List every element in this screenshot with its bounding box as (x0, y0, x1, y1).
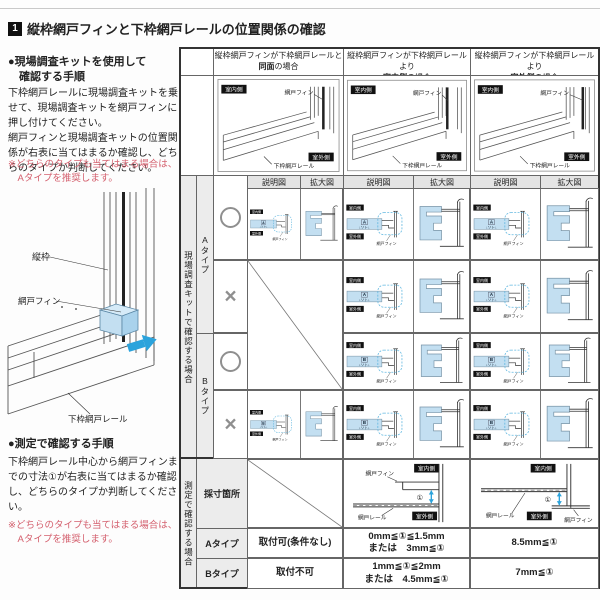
diagonal-line (248, 460, 342, 527)
svg-text:室外側: 室外側 (440, 153, 457, 161)
col-header-indoor: 縦枠網戸フィンが下枠網戸レールより 室内側の場合 (343, 48, 471, 76)
corner-view-flush: 室内側 室外側 網戸フィン 下枠網戸レール (213, 75, 344, 176)
kit-enlarged-icon (543, 393, 596, 456)
kit-cell-Bok-col3: 室内側 B ↓ソト↓ 室外側 網戸フィン (470, 333, 599, 390)
kit-cell-Bng-col2: 室内側 B ↓ソト↓ 室外側 網戸フィン (343, 390, 470, 459)
kit-enlarged-icon (303, 393, 340, 456)
kit-schematic-icon: 室内側 B ↓ソト↓ 室外側 網戸フィン (345, 392, 412, 457)
svg-text:網戸フィン: 網戸フィン (377, 378, 397, 384)
type-b-label: Bタイプ (196, 333, 214, 459)
kit-cell-Bng-col1: 室内側 B ↓ソト↓ 室外側 網戸フィン (247, 390, 343, 459)
svg-text:網戸フィン: 網戸フィン (285, 89, 314, 97)
svg-text:室内側: 室内側 (355, 86, 372, 94)
kit-enlarged-icon (303, 191, 340, 257)
ng-mark-cell: × (213, 390, 248, 459)
kit-schematic-icon: 室内側 A ↓ソト↓ 室外側 網戸フィン (472, 190, 539, 258)
enlarged-area (541, 391, 598, 458)
svg-text:①: ① (545, 496, 551, 504)
top-rule (0, 8, 600, 9)
svg-text:B: B (363, 357, 366, 362)
svg-text:網戸フィン: 網戸フィン (377, 240, 397, 246)
kit-cell-Ang-col3: 室内側 A ↓ソト↓ 室外側 網戸フィン (470, 260, 599, 333)
enlarged-area (541, 334, 598, 389)
svg-text:↓ソト↓: ↓ソト↓ (259, 425, 267, 429)
svg-text:網戸フィン: 網戸フィン (504, 313, 524, 319)
subheader-schematic-3: 説明図 (470, 175, 541, 189)
svg-text:室内側: 室内側 (252, 209, 261, 214)
svg-text:↓ソト↓: ↓ソト↓ (359, 426, 370, 430)
kit-schematic-icon: 室内側 B ↓ソト↓ 室外側 網戸フィン (472, 392, 539, 457)
svg-text:↓ソト↓: ↓ソト↓ (486, 226, 497, 230)
svg-text:網戸フィン: 網戸フィン (413, 89, 442, 97)
measure-spot-outdoor: 室内側 ① 網戸レール 室外側 網戸フィン (470, 459, 599, 528)
corner-view-icon: 室内側 室外側 網戸フィン 下枠網戸レール (474, 79, 595, 172)
corner-view-indoor: 室内側 室外側 網戸フィン 下枠網戸レール (343, 75, 471, 176)
kit-enlarged-icon (543, 191, 596, 257)
title-number-badge: 1 (8, 22, 22, 36)
svg-text:網戸フィン: 網戸フィン (504, 378, 524, 384)
circle-ok-mark (220, 351, 241, 372)
kit-cell-Aok-col3: 室内側 A ↓ソト↓ 室外側 網戸フィン (470, 188, 599, 260)
svg-text:網戸レール: 網戸レール (358, 513, 387, 521)
svg-text:下枠網戸レール: 下枠網戸レール (402, 161, 442, 169)
schematic-area: 室内側 A ↓ソト↓ 室外側 網戸フィン (248, 189, 301, 259)
svg-text:室内側: 室内側 (349, 405, 361, 411)
kit-schematic-icon: 室内側 A ↓ソト↓ 室外側 網戸フィン (345, 262, 412, 331)
manual-page: { "page": { "title_no": "1", "title": "縦… (0, 0, 600, 600)
measure-row-a-label: Aタイプ (196, 528, 248, 559)
enlarged-area (541, 189, 598, 259)
schematic-area: 室内側 A ↓ソト↓ 室外側 網戸フィン (344, 261, 414, 332)
measure-result-b-col3: 7mm≦① (470, 558, 599, 589)
ok-mark-cell (213, 175, 248, 260)
svg-text:網戸フィン: 網戸フィン (366, 469, 395, 477)
measure-spot-outer-icon: 室内側 ① 網戸レール 室外側 網戸フィン (473, 462, 596, 525)
kit-section-side-label: 現場調査キットで確認する場合 (180, 175, 197, 459)
svg-text:室外側: 室外側 (252, 231, 261, 236)
corner-view-icon: 室内側 室外側 網戸フィン 下枠網戸レール (217, 79, 340, 172)
svg-text:網戸フィン: 網戸フィン (273, 236, 288, 241)
measure-method-heading: ●測定で確認する手順 (8, 437, 178, 452)
svg-text:網戸レール: 網戸レール (486, 511, 515, 519)
col-header-flush: 縦枠網戸フィンが下枠網戸レールと 同面の場合 (213, 48, 344, 76)
kit-schematic-icon: 室内側 A ↓ソト↓ 室外側 網戸フィン (249, 190, 299, 258)
enlarged-area (414, 261, 469, 332)
schematic-area: 室内側 B ↓ソト↓ 室外側 網戸フィン (471, 391, 541, 458)
svg-text:室内側: 室内側 (349, 277, 361, 283)
table-corner-cell (180, 48, 214, 76)
kit-schematic-icon: 室内側 A ↓ソト↓ 室外側 網戸フィン (472, 262, 539, 331)
subheader-enlarged-1: 拡大図 (300, 175, 344, 189)
kit-enlarged-icon (416, 191, 467, 257)
schematic-area: 室内側 A ↓ソト↓ 室外側 網戸フィン (471, 261, 541, 332)
schematic-area: 室内側 B ↓ソト↓ 室外側 網戸フィン (248, 391, 301, 458)
measure-result-a-col3: 8.5mm≦① (470, 528, 599, 558)
schematic-area: 室内側 A ↓ソト↓ 室外側 網戸フィン (344, 189, 414, 259)
kit-enlarged-icon (416, 393, 467, 456)
svg-text:B: B (363, 420, 366, 425)
kit-method-note: ※どちらのタイプも当てはまる場合は、 Aタイプを推奨します。 (8, 158, 180, 186)
measure-row-spot-label: 採寸箇所 (196, 458, 248, 529)
svg-text:下枠網戸レール: 下枠網戸レール (274, 162, 315, 170)
kit-method-heading: ●現場調査キットを使用して 確認する手順 (8, 55, 178, 85)
subheader-enlarged-3: 拡大図 (540, 175, 599, 189)
svg-text:網戸フィン: 網戸フィン (504, 441, 524, 447)
kit-cell-Bok-col2: 室内側 B ↓ソト↓ 室外側 網戸フィン (343, 333, 470, 390)
measure-spot-indoor: 室内側 網戸フィン ① 網戸レール 室外側 (343, 459, 470, 528)
cross-ng-mark: × (224, 414, 236, 435)
svg-text:室内側: 室内側 (349, 204, 361, 210)
svg-text:縦枠: 縦枠 (32, 251, 50, 262)
svg-text:網戸フィン: 網戸フィン (18, 296, 60, 306)
svg-text:室内側: 室内側 (476, 405, 488, 411)
diagonal-line (248, 261, 342, 389)
svg-text:↓ソト↓: ↓ソト↓ (359, 363, 370, 367)
svg-text:室外側: 室外側 (349, 434, 361, 440)
svg-text:室内側: 室内側 (225, 86, 243, 94)
svg-text:室外側: 室外側 (349, 371, 361, 377)
kit-enlarged-icon (543, 336, 596, 387)
measure-method-note: ※どちらのタイプも当てはまる場合は、 Aタイプを推奨します。 (8, 519, 180, 547)
svg-text:室外側: 室外側 (476, 371, 488, 377)
measure-spot-empty (247, 459, 343, 528)
svg-text:↓ソト↓: ↓ソト↓ (486, 363, 497, 367)
svg-text:室外側: 室外側 (312, 153, 330, 161)
svg-text:室内側: 室内側 (476, 277, 488, 283)
kit-enlarged-icon (543, 263, 596, 330)
svg-text:室内側: 室内側 (349, 342, 361, 348)
measure-row-b-label: Bタイプ (196, 558, 248, 589)
kit-schematic-icon: 室内側 A ↓ソト↓ 室外側 網戸フィン (345, 190, 412, 258)
col-header-outdoor: 縦枠網戸フィンが下枠網戸レールより 室外側の場合 (470, 48, 599, 76)
svg-text:室外側: 室外側 (349, 233, 361, 239)
svg-text:室外側: 室外側 (531, 512, 548, 520)
enlarged-area (414, 189, 469, 259)
svg-text:室外側: 室外側 (252, 431, 261, 436)
svg-text:室外側: 室外側 (416, 512, 433, 520)
corner-view-outdoor: 室内側 室外側 網戸フィン 下枠網戸レール (470, 75, 599, 176)
kit-cell-Ang-col2: 室内側 A ↓ソト↓ 室外側 網戸フィン (343, 260, 470, 333)
enlarged-area (301, 189, 342, 259)
svg-text:網戸フィン: 網戸フィン (504, 240, 524, 246)
svg-text:①: ① (417, 494, 423, 502)
svg-text:↓ソト↓: ↓ソト↓ (359, 298, 370, 302)
svg-text:B: B (490, 420, 493, 425)
measure-result-a-col2: 0mm≦①≦1.5mm または 3mm≦① (343, 528, 470, 558)
ok-mark-cell (213, 333, 248, 390)
svg-text:↓ソト↓: ↓ソト↓ (486, 426, 497, 430)
kit-schematic-icon: 室内側 B ↓ソト↓ 室外側 網戸フィン (472, 335, 539, 388)
schematic-area: 室内側 B ↓ソト↓ 室外側 網戸フィン (344, 391, 414, 458)
measure-spot-inner-icon: 室内側 網戸フィン ① 網戸レール 室外側 (346, 462, 467, 525)
subheader-schematic-2: 説明図 (343, 175, 414, 189)
kit-schematic-icon: 室内側 B ↓ソト↓ 室外側 網戸フィン (249, 392, 299, 457)
enlarged-area (301, 391, 342, 458)
measure-result-b-col2: 1mm≦①≦2mm または 4.5mm≦① (343, 558, 470, 589)
svg-text:室内側: 室内側 (476, 204, 488, 210)
kit-enlarged-icon (416, 336, 467, 387)
svg-text:網戸フィン: 網戸フィン (377, 313, 397, 319)
svg-text:室外側: 室外側 (568, 153, 585, 161)
subheader-schematic-1: 説明図 (247, 175, 301, 189)
kit-cell-Bng-col3: 室内側 B ↓ソト↓ 室外側 網戸フィン (470, 390, 599, 459)
empty-diagonal-cell (247, 260, 343, 390)
svg-text:室外側: 室外側 (476, 306, 488, 312)
svg-text:↓ソト↓: ↓ソト↓ (486, 298, 497, 302)
svg-text:室内側: 室内側 (482, 86, 499, 94)
kit-enlarged-icon (416, 263, 467, 330)
svg-text:下枠網戸レール: 下枠網戸レール (68, 414, 128, 424)
title-text: 縦枠網戸フィンと下枠網戸レールの位置関係の確認 (27, 19, 326, 38)
svg-text:室外側: 室外側 (476, 233, 488, 239)
svg-text:↓ソト↓: ↓ソト↓ (359, 226, 370, 230)
subheader-enlarged-2: 拡大図 (413, 175, 471, 189)
kit-cell-Aok-col1: 室内側 A ↓ソト↓ 室外側 網戸フィン (247, 188, 343, 260)
measure-method-body: 下枠網戸レール中心から網戸フィンまでの寸法①が右表に当てはまるか確認し、どちらの… (8, 455, 178, 515)
measure-result-b-col1: 取付不可 (247, 558, 343, 589)
schematic-area: 室内側 B ↓ソト↓ 室外側 網戸フィン (471, 334, 541, 389)
svg-text:網戸フィン: 網戸フィン (540, 89, 569, 97)
svg-text:網戸フィン: 網戸フィン (377, 441, 397, 447)
frame-corner-icon: 縦枠 網戸フィン 下枠網戸レール (4, 186, 176, 430)
page-title: 1 縦枠網戸フィンと下枠網戸レールの位置関係の確認 (8, 19, 326, 38)
table-corner-cell2 (180, 75, 214, 176)
svg-text:↓ソト↓: ↓ソト↓ (259, 225, 267, 229)
schematic-area: 室内側 B ↓ソト↓ 室外側 網戸フィン (344, 334, 414, 389)
kit-schematic-icon: 室内側 B ↓ソト↓ 室外側 網戸フィン (345, 335, 412, 388)
ng-mark-cell: × (213, 260, 248, 333)
kit-cell-Aok-col2: 室内側 A ↓ソト↓ 室外側 網戸フィン (343, 188, 470, 260)
cross-ng-mark: × (224, 286, 236, 307)
circle-ok-mark (220, 207, 241, 228)
svg-text:下枠網戸レール: 下枠網戸レール (530, 162, 570, 170)
schematic-area: 室内側 A ↓ソト↓ 室外側 網戸フィン (471, 189, 541, 259)
enlarged-area (414, 334, 469, 389)
svg-text:室内側: 室内側 (535, 465, 552, 473)
svg-text:室外側: 室外側 (349, 306, 361, 312)
measure-section-side-label: 測定で確認する場合 (180, 458, 197, 589)
type-a-label: Aタイプ (196, 175, 214, 334)
svg-text:室内側: 室内側 (418, 465, 435, 473)
frame-corner-diagram: 縦枠 網戸フィン 下枠網戸レール (4, 186, 176, 430)
svg-text:網戸フィン: 網戸フィン (564, 516, 593, 524)
measure-result-a-col1: 取付可(条件なし) (247, 528, 343, 558)
svg-text:網戸フィン: 網戸フィン (273, 436, 288, 441)
svg-text:B: B (490, 357, 493, 362)
enlarged-area (414, 391, 469, 458)
enlarged-area (541, 261, 598, 332)
corner-view-icon: 室内側 室外側 網戸フィン 下枠網戸レール (347, 79, 467, 172)
svg-text:室外側: 室外側 (476, 434, 488, 440)
svg-text:室内側: 室内側 (252, 410, 261, 415)
svg-text:室内側: 室内側 (476, 342, 488, 348)
